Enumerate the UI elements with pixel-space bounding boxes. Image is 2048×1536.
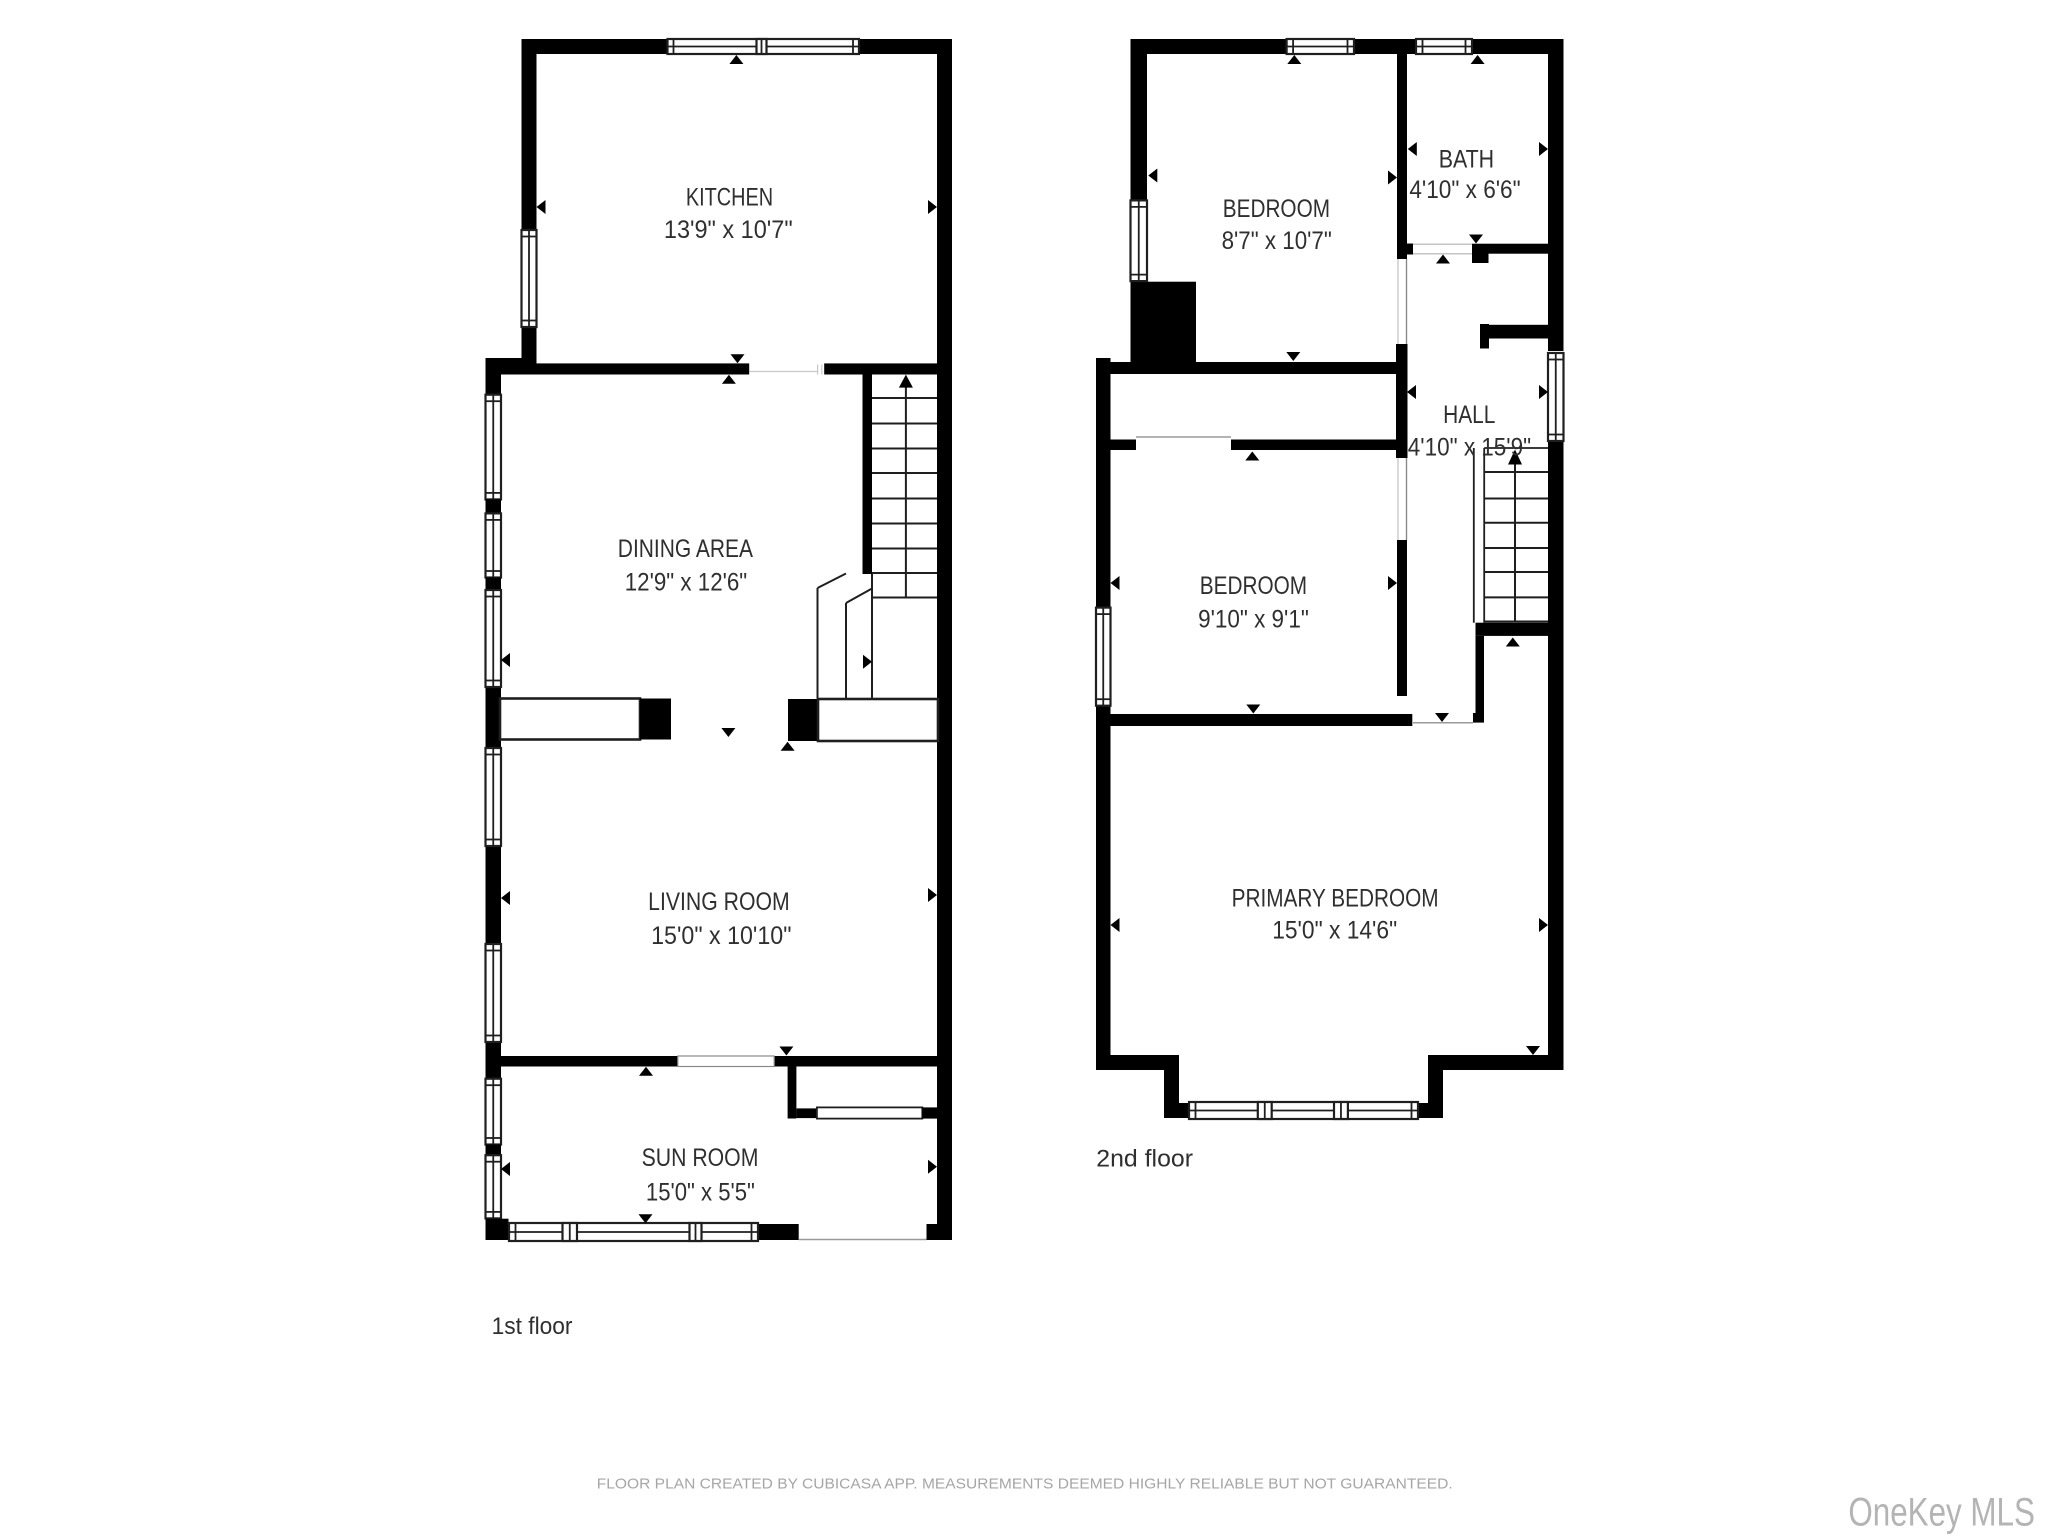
svg-text:15'0" x 10'10": 15'0" x 10'10": [651, 922, 791, 950]
svg-text:OneKey MLS: OneKey MLS: [1848, 1491, 2035, 1535]
svg-text:FLOOR PLAN CREATED BY CUBICASA: FLOOR PLAN CREATED BY CUBICASA APP. MEAS…: [597, 1477, 1453, 1493]
svg-text:4'10" x 6'6": 4'10" x 6'6": [1409, 176, 1520, 204]
svg-text:KITCHEN: KITCHEN: [686, 183, 773, 211]
svg-text:13'9" x 10'7": 13'9" x 10'7": [664, 216, 793, 244]
svg-text:BATH: BATH: [1439, 146, 1494, 174]
svg-text:BEDROOM: BEDROOM: [1223, 195, 1330, 223]
svg-text:15'0" x 14'6": 15'0" x 14'6": [1272, 917, 1397, 945]
svg-text:12'9" x 12'6": 12'9" x 12'6": [625, 569, 748, 597]
svg-text:DINING AREA: DINING AREA: [618, 535, 753, 563]
svg-text:PRIMARY BEDROOM: PRIMARY BEDROOM: [1232, 885, 1439, 913]
svg-text:BEDROOM: BEDROOM: [1200, 572, 1307, 600]
svg-text:8'7" x 10'7": 8'7" x 10'7": [1222, 227, 1332, 255]
svg-text:SUN ROOM: SUN ROOM: [642, 1144, 759, 1172]
svg-text:1st floor: 1st floor: [492, 1313, 573, 1340]
svg-text:2nd floor: 2nd floor: [1096, 1145, 1193, 1172]
svg-text:15'0" x 5'5": 15'0" x 5'5": [646, 1179, 755, 1207]
svg-text:4'10" x 15'9": 4'10" x 15'9": [1408, 434, 1531, 462]
svg-text:LIVING ROOM: LIVING ROOM: [648, 888, 790, 916]
svg-text:HALL: HALL: [1443, 401, 1495, 429]
svg-text:9'10" x 9'1": 9'10" x 9'1": [1198, 605, 1309, 633]
